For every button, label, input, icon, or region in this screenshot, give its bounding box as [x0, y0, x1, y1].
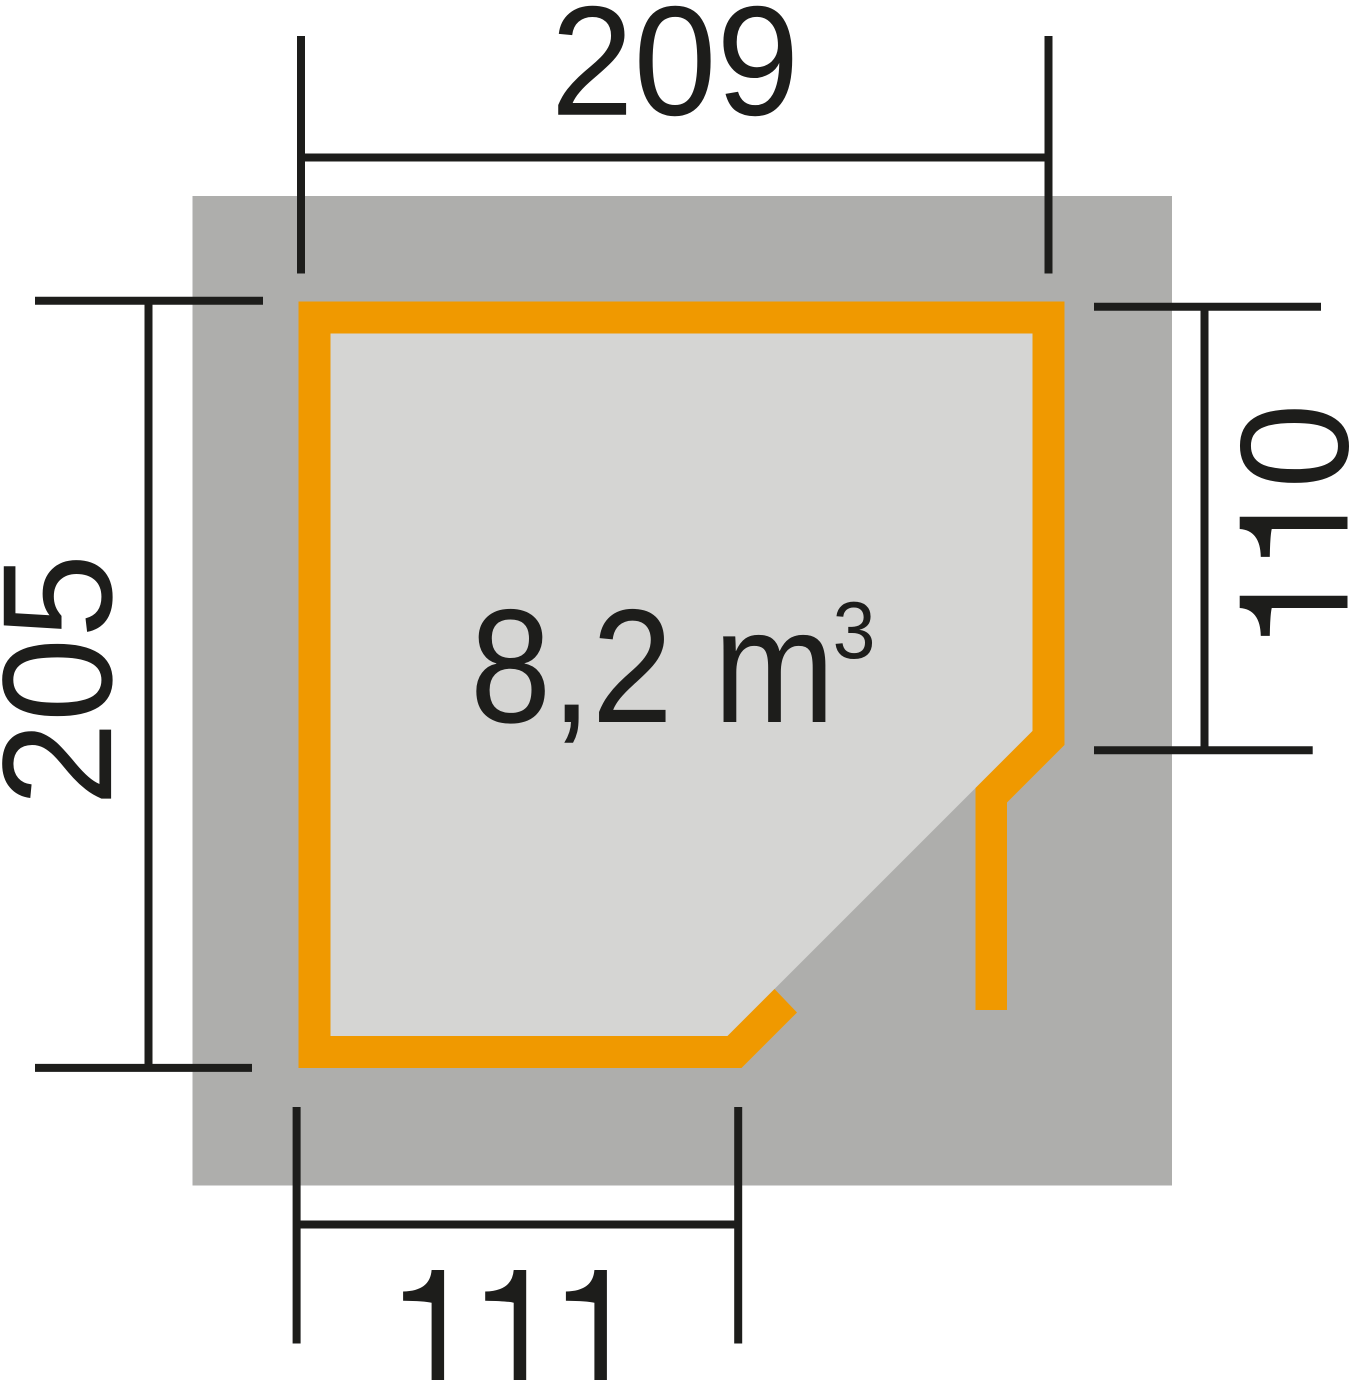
svg-text:0: 0 — [1209, 403, 1352, 489]
svg-text:205: 205 — [0, 554, 145, 806]
svg-text:3: 3 — [833, 584, 876, 675]
svg-text:8,2 m: 8,2 m — [470, 575, 835, 757]
svg-text:209: 209 — [551, 0, 800, 148]
